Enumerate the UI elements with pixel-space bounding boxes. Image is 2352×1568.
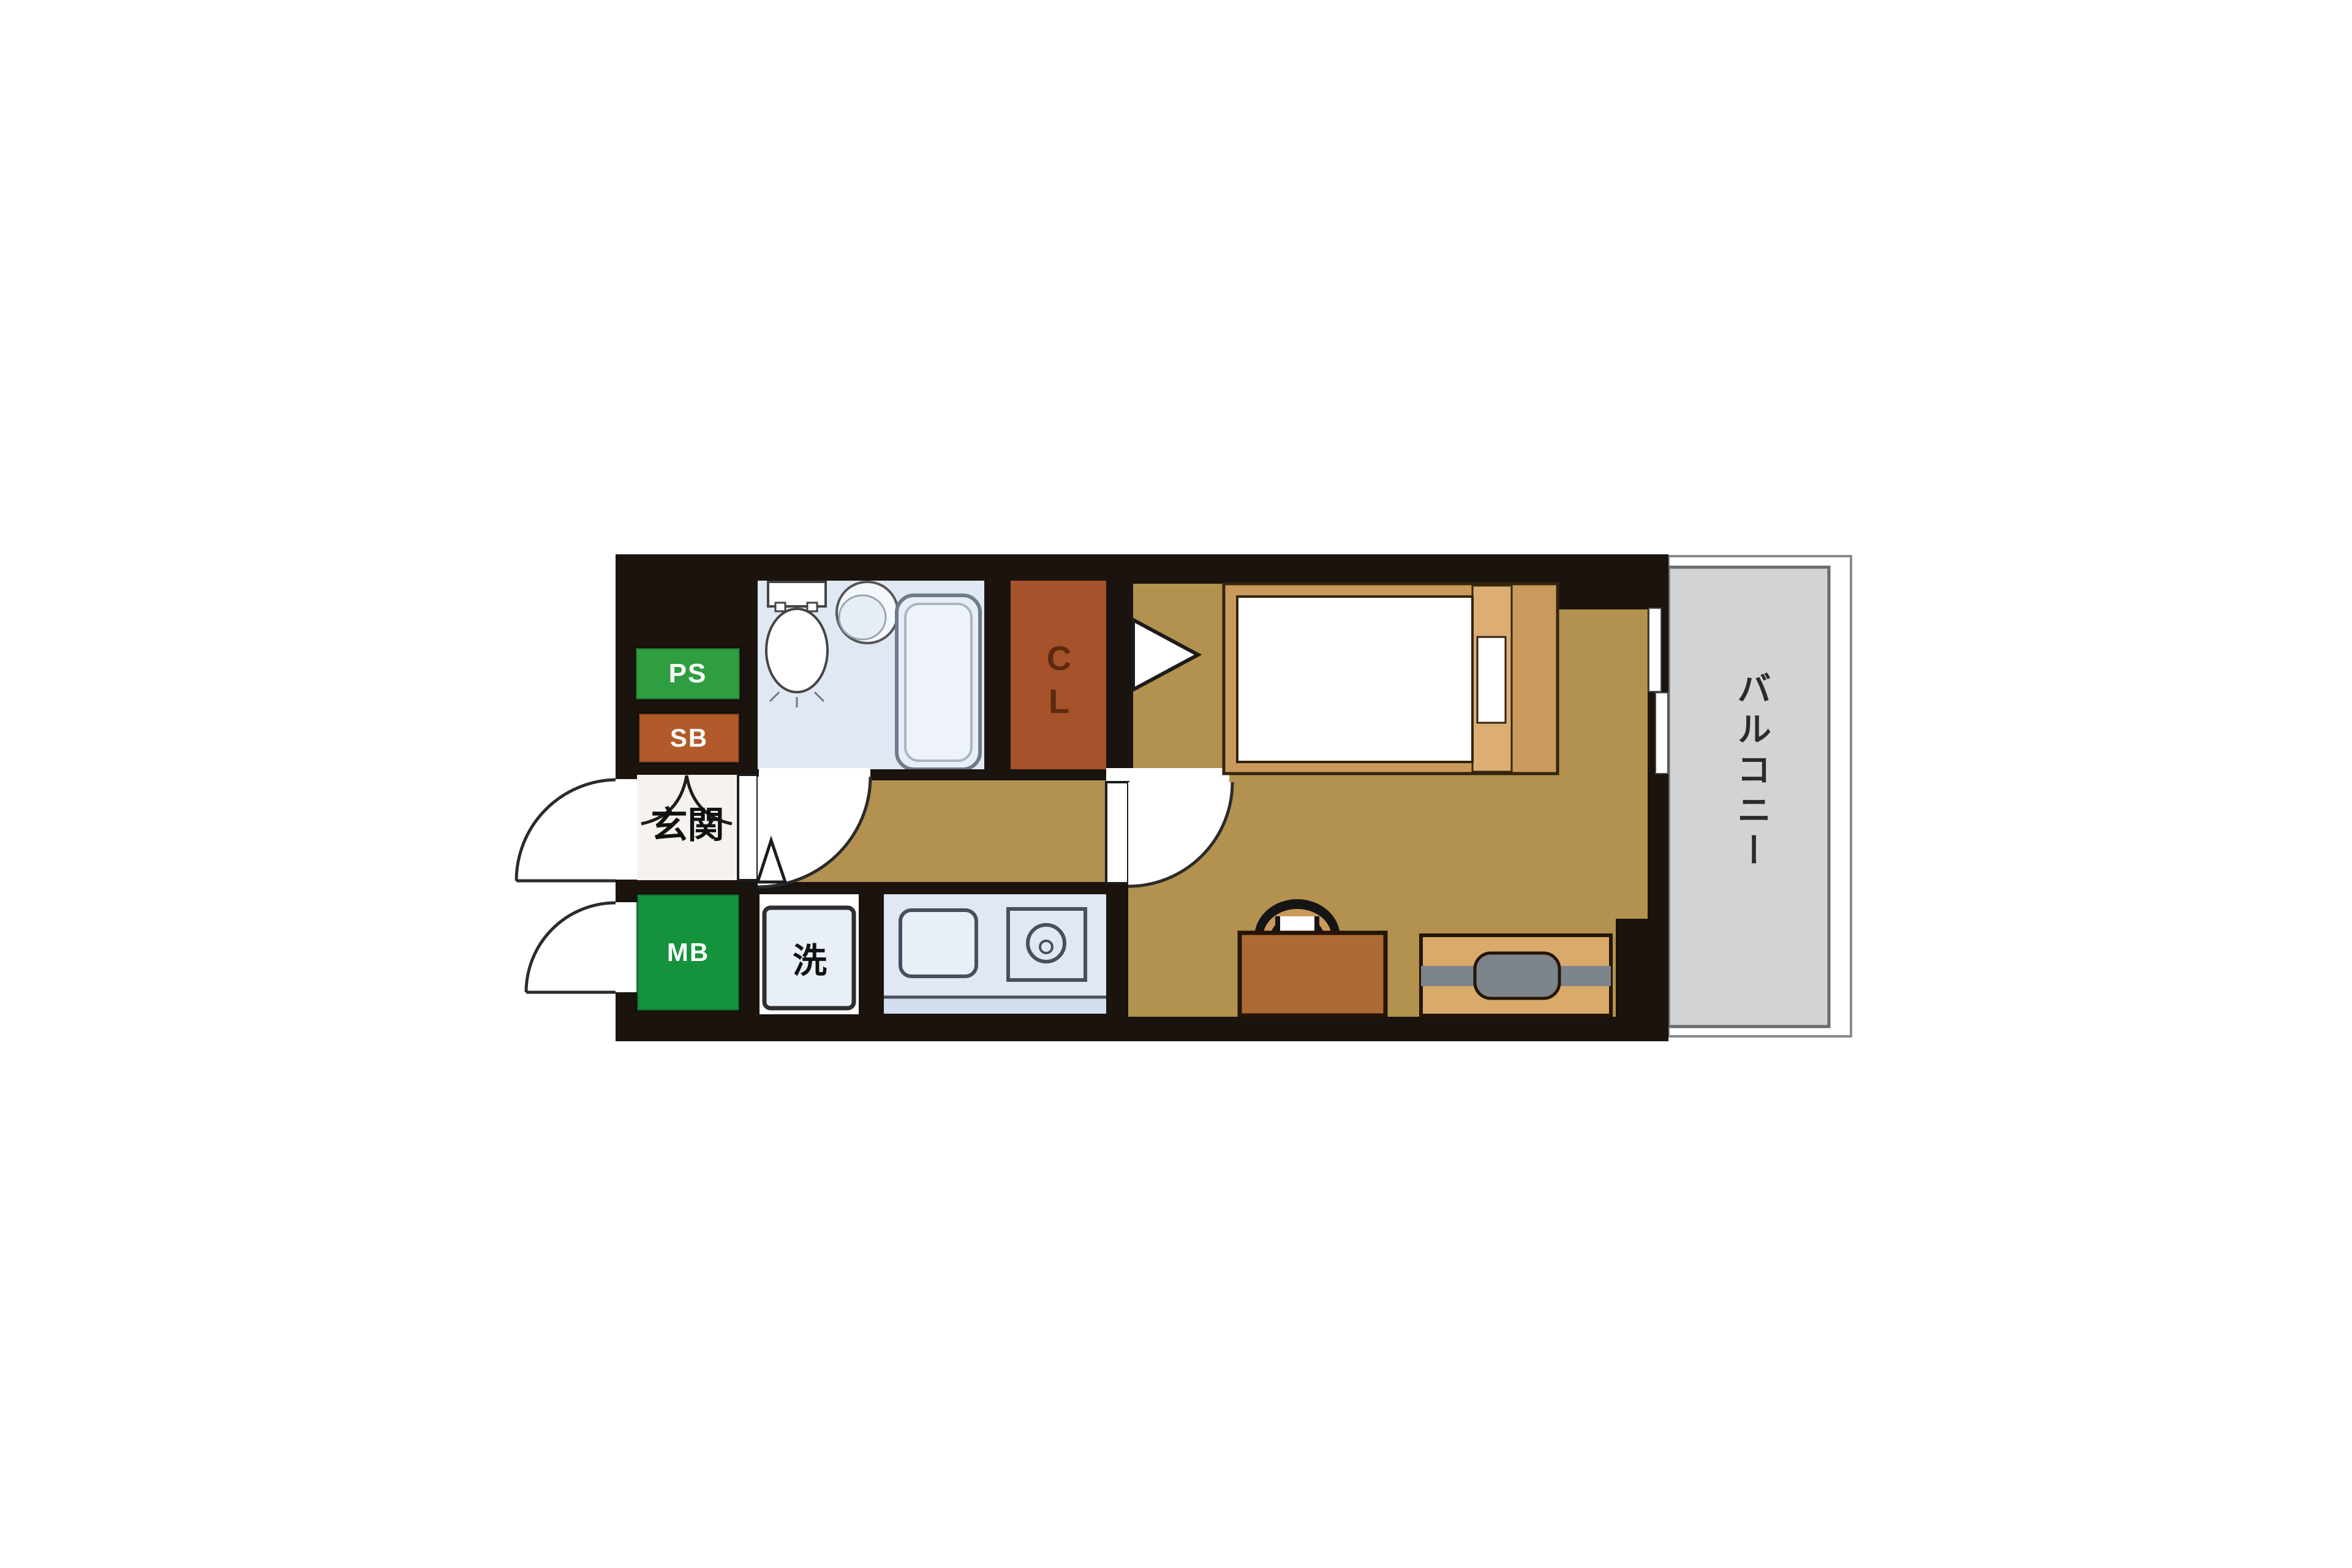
stove bbox=[1008, 909, 1085, 980]
balcony-label: バルコニー bbox=[1697, 594, 1807, 949]
floor-plan: PS SB 玄関 MB 洗 C L バルコニー bbox=[0, 0, 2352, 1568]
bed-pillow bbox=[1477, 637, 1506, 723]
bottom-right-wall-block bbox=[1616, 919, 1668, 1041]
meter-box-door-opening bbox=[614, 902, 637, 992]
floor-plan-drawing bbox=[0, 0, 2352, 1568]
room-left-wall bbox=[1106, 554, 1133, 772]
meter-box-door-swing-arc bbox=[526, 903, 616, 992]
meter-box-label: MB bbox=[637, 894, 739, 1011]
bed-mattress bbox=[1237, 597, 1472, 762]
toilet-tank-nub bbox=[775, 603, 785, 611]
shoe-box-label: SB bbox=[639, 714, 739, 763]
toilet-tank-nub bbox=[807, 603, 817, 611]
entrance-door-swing-arc bbox=[516, 780, 616, 881]
kitchen-counter-edge bbox=[884, 997, 1106, 1014]
entrance-door-opening bbox=[614, 779, 637, 880]
tv bbox=[1475, 953, 1559, 998]
desk bbox=[1240, 933, 1385, 1016]
closet-label: C L bbox=[1011, 605, 1107, 755]
room-doorway-opening bbox=[1106, 768, 1229, 783]
kitchen-sink bbox=[900, 910, 976, 976]
toilet-bowl bbox=[766, 609, 827, 692]
top-right-wall-block bbox=[1553, 554, 1668, 609]
window-sash bbox=[1656, 693, 1668, 774]
bathroom-door-leaf bbox=[738, 775, 758, 880]
bathtub-inner bbox=[905, 604, 971, 761]
laundry-label: 洗 bbox=[762, 908, 858, 1008]
window-sash bbox=[1649, 608, 1661, 692]
bathroom-sink-basin bbox=[839, 595, 886, 639]
entrance-label: 玄関 bbox=[637, 785, 738, 859]
room-door-leaf bbox=[1106, 782, 1128, 883]
pipe-space-label: PS bbox=[636, 648, 740, 699]
